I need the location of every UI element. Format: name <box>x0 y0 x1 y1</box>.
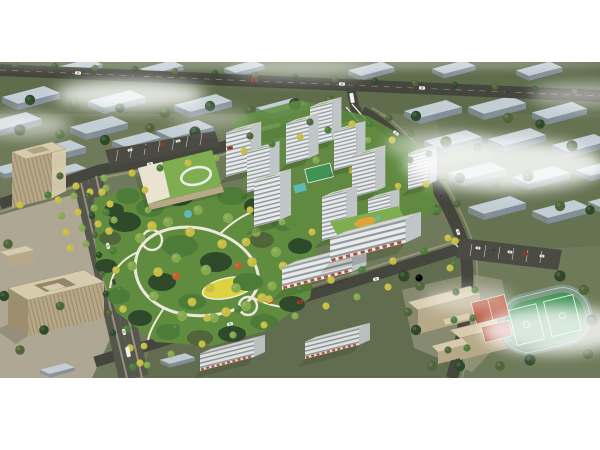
playground <box>184 210 192 218</box>
screenshot <box>0 0 600 450</box>
white-margin-bottom <box>0 378 600 450</box>
architectural-rendering <box>0 0 600 450</box>
white-margin-top <box>0 0 600 62</box>
